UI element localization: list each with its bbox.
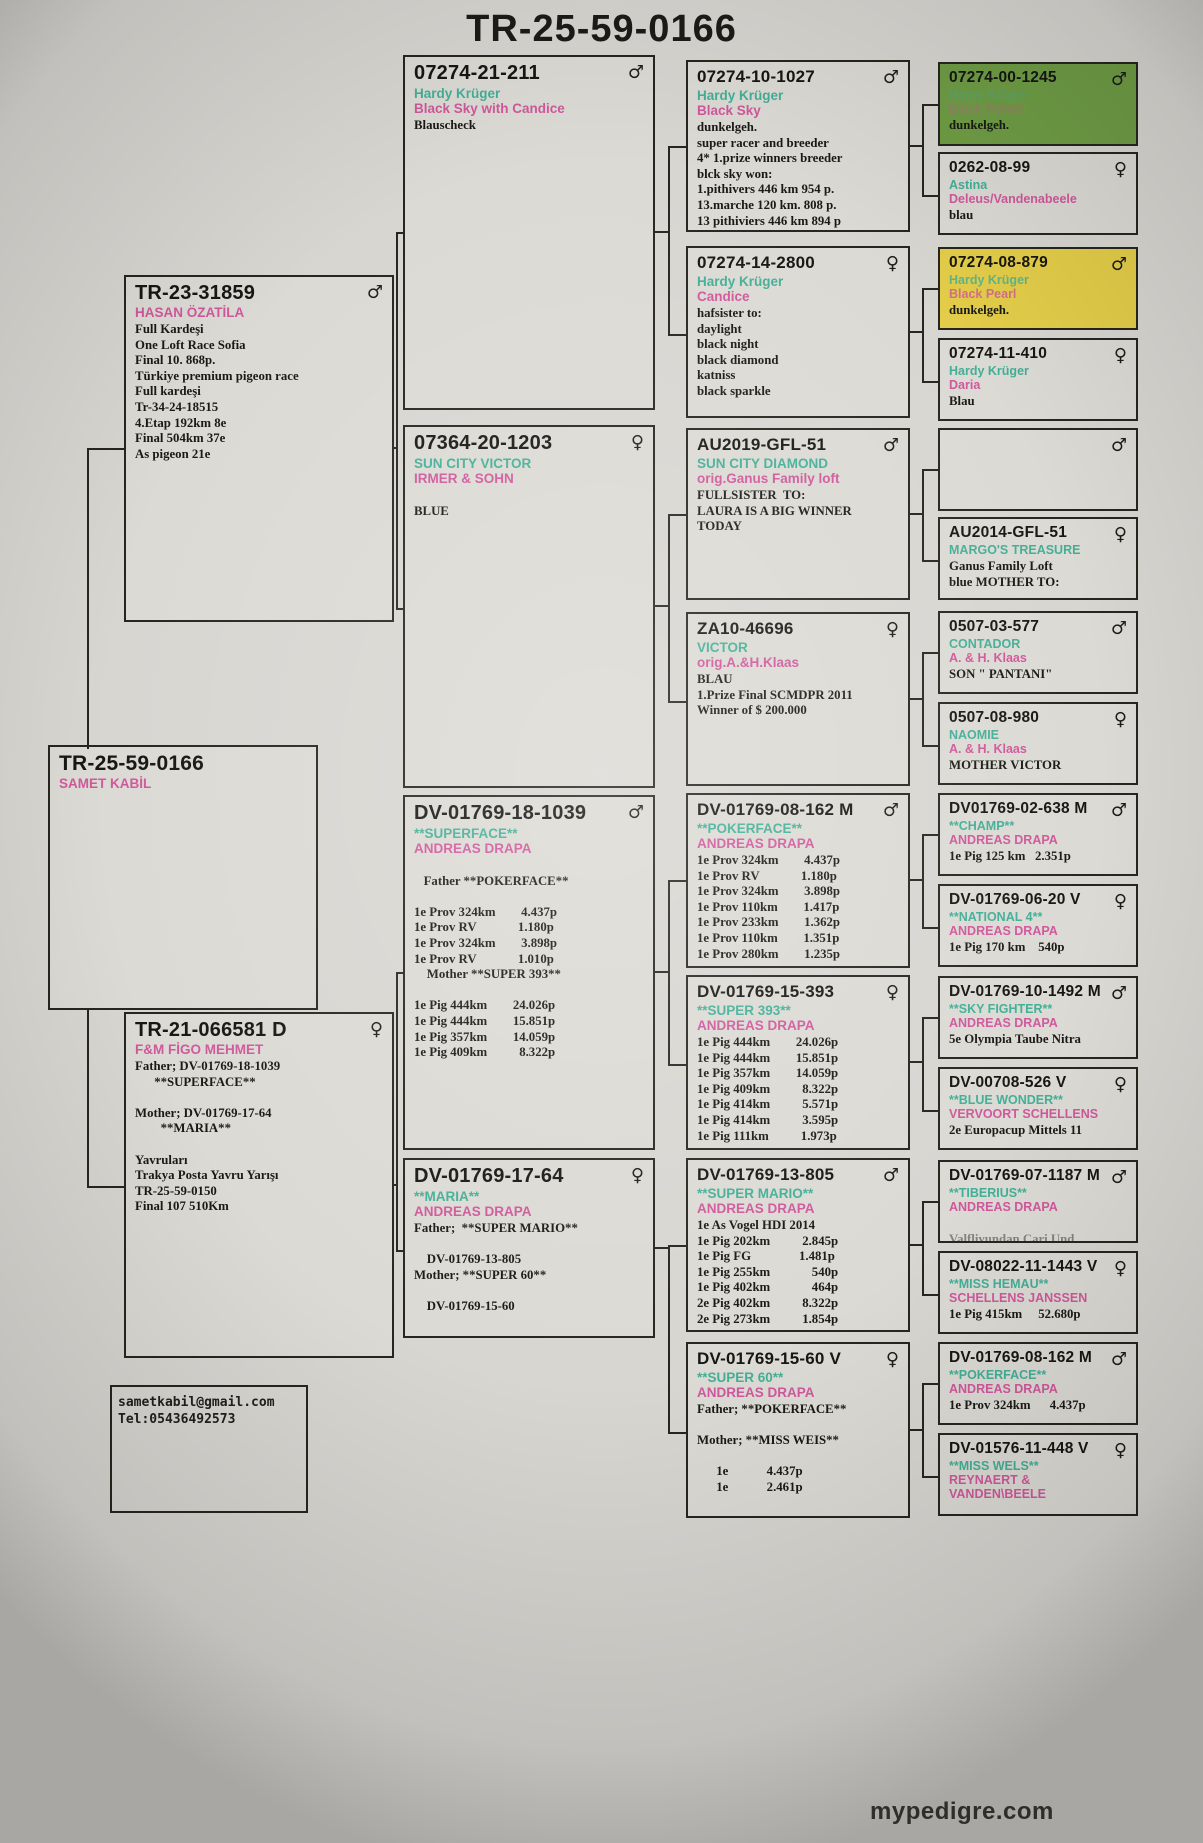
sex-symbol: ♂ [883,800,899,821]
details-text: 1e Prov 324km 4.437p [949,1398,1130,1414]
pedigree-box-g5-162: DV-01769-08-162 M ♂ **POKERFACE** ANDREA… [938,1342,1138,1425]
details-text: Blau [949,394,1130,410]
connector-line [87,448,126,749]
ring-number: DV-01769-13-805 [697,1165,902,1185]
pigeon-name: **NATIONAL 4** [949,910,1130,924]
pigeon-name: VICTOR [697,640,902,655]
loft-name: Candice [697,289,902,304]
details-text: SON " PANTANI" [949,667,1130,683]
sex-symbol: ♀ [886,1349,899,1370]
details-text: dunkelgeh. [949,303,1130,319]
pedigree-box-g5-1187: DV-01769-07-1187 M ♂ **TIBERIUS** ANDREA… [938,1160,1138,1243]
ring-number: DV-01576-11-448 V [949,1440,1130,1458]
pigeon-name: Hardy Krüger [949,88,1130,102]
details-text: Father; DV-01769-18-1039 **SUPERFACE** M… [135,1059,386,1215]
sex-symbol: ♀ [1114,1074,1127,1095]
connector-line [910,698,924,700]
pedigree-box-g5-0620: DV-01769-06-20 V ♀ **NATIONAL 4** ANDREA… [938,884,1138,967]
connector-line [922,1383,940,1478]
loft-name: ANDREAS DRAPA [949,1016,1130,1030]
pedigree-box-g5-au2014: AU2014-GFL-51 ♀ MARGO'S TREASURE Ganus F… [938,517,1138,600]
details-text: Father **POKERFACE** 1e Prov 324km 4.437… [414,858,647,1061]
connector-line [910,331,924,333]
details-text: FULLSISTER TO: LAURA IS A BIG WINNER TOD… [697,488,902,535]
pedigree-box-g5-638: DV01769-02-638 M ♂ **CHAMP** ANDREAS DRA… [938,793,1138,876]
ring-number: AU2019-GFL-51 [697,435,902,455]
loft-name: IRMER & SOHN [414,471,647,486]
pedigree-box-g5-0262: 0262-08-99 ♀ Astina Deleus/Vandenabeele … [938,152,1138,235]
ring-number: DV-08022-11-1443 V [949,1258,1130,1276]
connector-line [922,652,940,747]
ring-number: DV-01769-10-1492 M [949,983,1130,1001]
connector-line [922,288,940,383]
sex-symbol: ♀ [886,982,899,1003]
pedigree-box-g3-64: DV-01769-17-64 ♀ **MARIA** ANDREAS DRAPA… [403,1158,655,1338]
pigeon-name: **SUPER MARIO** [697,1186,902,1201]
ring-number: DV-01769-07-1187 M [949,1167,1130,1185]
loft-name: Black Pearl [949,287,1130,301]
pedigree-box-g3-1203: 07364-20-1203 ♀ SUN CITY VICTOR IRMER & … [403,425,655,788]
pedigree-box-g5-526: DV-00708-526 V ♀ **BLUE WONDER** VERVOOR… [938,1067,1138,1150]
connector-line [910,879,924,881]
connector-line [910,513,924,515]
connector-line [910,1061,924,1063]
sex-symbol: ♀ [631,1165,644,1186]
pedigree-box-g5-1443: DV-08022-11-1443 V ♀ **MISS HEMAU** SCHE… [938,1251,1138,1334]
connector-line [396,232,405,610]
details-text: 1e Prov 324km 4.437p 1e Prov RV 1.180p 1… [697,853,902,962]
ring-number: DV-01769-15-393 [697,982,902,1002]
ring-number: DV01769-02-638 M [949,800,1130,818]
pigeon-name: SUN CITY DIAMOND [697,456,902,471]
loft-name: A. & H. Klaas [949,651,1130,665]
loft-name: Black Sky [697,103,902,118]
connector-line [392,447,398,449]
connector-line [910,145,924,147]
contact-phone: Tel:05436492573 [118,1412,235,1427]
connector-line [655,971,670,973]
pedigree-box-g4-2800: 07274-14-2800 ♀ Hardy Krüger Candice haf… [686,246,910,418]
ring-number: DV-01769-08-162 M [697,800,902,820]
connector-line [910,1244,924,1246]
ring-number: DV-01769-08-162 M [949,1349,1130,1367]
loft-name: ANDREAS DRAPA [414,841,647,856]
pedigree-box-g5-448: DV-01576-11-448 V ♀ **MISS WELS** REYNAE… [938,1433,1138,1516]
connector-line [392,1184,398,1186]
pigeon-name: **TIBERIUS** [949,1186,1130,1200]
pigeon-name: **SUPER 393** [697,1003,902,1018]
loft-name: Black Sky with Candice [414,101,647,116]
pedigree-box-g4-393: DV-01769-15-393 ♀ **SUPER 393** ANDREAS … [686,975,910,1150]
connector-line [668,1245,688,1434]
sex-symbol: ♀ [1114,345,1127,366]
pigeon-name: NAOMIE [949,728,1130,742]
ring-number: TR-21-066581 D [135,1019,386,1042]
ring-number: 0507-08-980 [949,709,1130,727]
sex-symbol: ♂ [1111,254,1127,275]
loft-name: REYNAERT & VANDEN\BEELE [949,1473,1130,1501]
pedigree-box-g4-162: DV-01769-08-162 M ♂ **POKERFACE** ANDREA… [686,793,910,968]
details-text: Valfliyundan Cari Und [949,1216,1130,1243]
loft-name: ANDREAS DRAPA [949,833,1130,847]
connector-line [87,1008,126,1188]
watermark-logo: mypedigre.com [870,1798,1054,1826]
details-text: 1e Pig 125 km 2.351p [949,849,1130,865]
details-text: Father; **POKERFACE** Mother; **MISS WEI… [697,1402,902,1496]
sex-symbol: ♂ [628,802,644,823]
pigeon-name: **MISS WELS** [949,1459,1130,1473]
details-text: BLAU 1.Prize Final SCMDPR 2011 Winner of… [697,672,902,719]
ring-number: 07274-00-1245 [949,69,1130,87]
sex-symbol: ♀ [1114,709,1127,730]
sex-symbol: ♂ [1111,983,1127,1004]
pigeon-name: **SKY FIGHTER** [949,1002,1130,1016]
sex-symbol: ♂ [628,62,644,83]
pedigree-box-g3-1039: DV-01769-18-1039 ♂ **SUPERFACE** ANDREAS… [403,795,655,1150]
sex-symbol: ♂ [1111,618,1127,639]
pigeon-name: **SUPERFACE** [414,826,647,841]
details-text: dunkelgeh. [949,118,1130,134]
pedigree-box-g5-577: 0507-03-577 ♂ CONTADOR A. & H. Klaas SON… [938,611,1138,694]
ring-number: ZA10-46696 [697,619,902,639]
pedigree-box-g5-1245: 07274-00-1245 ♂ Hardy Krüger Black Power… [938,62,1138,146]
sex-symbol: ♀ [631,432,644,453]
pigeon-name: Hardy Krüger [697,88,902,103]
ring-number: 07274-14-2800 [697,253,902,273]
details-text: hafsister to: daylight black night black… [697,306,902,400]
pedigree-box-g5-410: 07274-11-410 ♀ Hardy Krüger Daria Blau [938,338,1138,421]
ring-number: TR-23-31859 [135,282,386,305]
ring-number: 07274-21-211 [414,62,647,85]
pigeon-name: **SUPER 60** [697,1370,902,1385]
contact-email: sametkabil@gmail.com [118,1395,275,1410]
sex-symbol: ♀ [1114,891,1127,912]
details-text: 5e Olympia Taube Nitra [949,1032,1130,1048]
details-text: 1e Pig 170 km 540p [949,940,1130,956]
loft-name: ANDREAS DRAPA [697,1385,902,1400]
pigeon-name: CONTADOR [949,637,1130,651]
connector-line [922,1017,940,1112]
pigeon-name: SUN CITY VICTOR [414,456,647,471]
sex-symbol: ♀ [886,619,899,640]
connector-line [655,1247,670,1249]
ring-number: 07274-11-410 [949,345,1130,363]
details-text: Blauscheck [414,118,647,134]
loft-name: HASAN ÖZATİLA [135,305,386,320]
connector-line [922,469,940,562]
page-title: TR-25-59-0166 [0,8,1203,51]
connector-line [655,605,670,607]
pigeon-name: **MISS HEMAU** [949,1277,1130,1291]
pedigree-box-g5-blank: ♂ [938,428,1138,511]
ring-number: TR-25-59-0166 [59,752,310,776]
sex-symbol: ♀ [1114,159,1127,180]
pigeon-name: Hardy Krüger [949,364,1130,378]
sex-symbol: ♂ [1111,1349,1127,1370]
ring-number: DV-01769-06-20 V [949,891,1130,909]
ring-number: 07364-20-1203 [414,432,647,455]
pedigree-page: TR-25-59-0166 TR-25-59-0166 SAMET KABİL … [0,0,1203,1843]
contact-box: sametkabil@gmail.com Tel:05436492573 [110,1385,308,1513]
sex-symbol: ♀ [1114,1440,1127,1461]
pedigree-box-g4-au2019: AU2019-GFL-51 ♂ SUN CITY DIAMOND orig.Ga… [686,428,910,600]
pigeon-name: MARGO'S TREASURE [949,543,1130,557]
sex-symbol: ♀ [886,253,899,274]
loft-name: SCHELLENS JANSSEN [949,1291,1130,1305]
ring-number: DV-01769-15-60 V [697,1349,902,1369]
loft-name: SAMET KABİL [59,776,310,791]
connector-line [922,1201,940,1296]
pigeon-name: Astina [949,178,1130,192]
ring-number: DV-01769-17-64 [414,1165,647,1188]
pedigree-box-g3-211: 07274-21-211 ♂ Hardy Krüger Black Sky wi… [403,55,655,410]
connector-line [922,104,940,197]
connector-line [668,514,688,703]
details-text: dunkelgeh. super racer and breeder 4* 1.… [697,120,902,229]
sex-symbol: ♂ [1111,800,1127,821]
sex-symbol: ♂ [883,1165,899,1186]
loft-name: orig.A.&H.Klaas [697,655,902,670]
connector-line [655,231,670,233]
connector-line [668,146,688,336]
sex-symbol: ♂ [1111,69,1127,90]
loft-name: Deleus/Vandenabeele [949,192,1130,206]
details-text: MOTHER VICTOR [949,758,1130,774]
pigeon-name: Hardy Krüger [949,273,1130,287]
sex-symbol: ♀ [1114,524,1127,545]
sex-symbol: ♂ [883,435,899,456]
loft-name: Daria [949,378,1130,392]
details-text: 1e Pig 444km 24.026p 1e Pig 444km 15.851… [697,1035,902,1144]
pedigree-box-subject: TR-25-59-0166 SAMET KABİL [48,745,318,1010]
pedigree-box-g4-60: DV-01769-15-60 V ♀ **SUPER 60** ANDREAS … [686,1342,910,1518]
loft-name: ANDREAS DRAPA [949,1382,1130,1396]
loft-name: ANDREAS DRAPA [949,924,1130,938]
sex-symbol: ♀ [1114,1258,1127,1279]
ring-number: AU2014-GFL-51 [949,524,1130,542]
connector-line [668,880,688,1066]
ring-number: DV-00708-526 V [949,1074,1130,1092]
details-text: Full Kardeşi One Loft Race Sofia Final 1… [135,322,386,462]
connector-line [922,834,940,929]
ring-number: 0507-03-577 [949,618,1130,636]
details-text: BLUE [414,488,647,519]
pedigree-box-sire: TR-23-31859 ♂ HASAN ÖZATİLA Full Kardeşi… [124,275,394,622]
loft-name: ANDREAS DRAPA [414,1204,647,1219]
sex-symbol: ♂ [1111,1167,1127,1188]
loft-name: ANDREAS DRAPA [697,836,902,851]
pedigree-box-g4-za10: ZA10-46696 ♀ VICTOR orig.A.&H.Klaas BLAU… [686,612,910,786]
sex-symbol: ♂ [883,67,899,88]
sex-symbol: ♀ [370,1019,383,1040]
pigeon-name: **POKERFACE** [697,821,902,836]
details-text: 2e Europacup Mittels 11 [949,1123,1130,1139]
details-text: Father; **SUPER MARIO** DV-01769-13-805 … [414,1221,647,1315]
connector-line [396,972,405,1252]
pigeon-name: Hardy Krüger [414,86,647,101]
pigeon-name: **MARIA** [414,1189,647,1204]
connector-line [910,1429,924,1431]
pigeon-name: **CHAMP** [949,819,1130,833]
pedigree-box-g4-1027: 07274-10-1027 ♂ Hardy Krüger Black Sky d… [686,60,910,232]
loft-name: ANDREAS DRAPA [949,1200,1130,1214]
ring-number: DV-01769-18-1039 [414,802,647,825]
ring-number: 07274-08-879 [949,254,1130,272]
loft-name: VERVOORT SCHELLENS [949,1107,1130,1121]
pedigree-box-g4-805: DV-01769-13-805 ♂ **SUPER MARIO** ANDREA… [686,1158,910,1332]
details-text: Ganus Family Loft blue MOTHER TO: [949,559,1130,590]
pigeon-name: **BLUE WONDER** [949,1093,1130,1107]
details-text: 1e Pig 415km 52.680p [949,1307,1130,1323]
loft-name: ANDREAS DRAPA [697,1201,902,1216]
pedigree-box-g5-980: 0507-08-980 ♀ NAOMIE A. & H. Klaas MOTHE… [938,702,1138,785]
pedigree-box-dam: TR-21-066581 D ♀ F&M FİGO MEHMET Father;… [124,1012,394,1358]
loft-name: A. & H. Klaas [949,742,1130,756]
ring-number: 0262-08-99 [949,159,1130,177]
details-text: 1e As Vogel HDI 2014 1e Pig 202km 2.845p… [697,1218,902,1327]
pigeon-name: **POKERFACE** [949,1368,1130,1382]
loft-name: orig.Ganus Family loft [697,471,902,486]
loft-name: Black Power [949,102,1130,116]
ring-number: 07274-10-1027 [697,67,902,87]
sex-symbol: ♂ [1111,435,1127,456]
details-text: blau [949,208,1130,224]
loft-name: F&M FİGO MEHMET [135,1042,386,1057]
pedigree-box-g5-879: 07274-08-879 ♂ Hardy Krüger Black Pearl … [938,247,1138,330]
sex-symbol: ♂ [367,282,383,303]
pedigree-box-g5-1492: DV-01769-10-1492 M ♂ **SKY FIGHTER** AND… [938,976,1138,1059]
pigeon-name: Hardy Krüger [697,274,902,289]
loft-name: ANDREAS DRAPA [697,1018,902,1033]
